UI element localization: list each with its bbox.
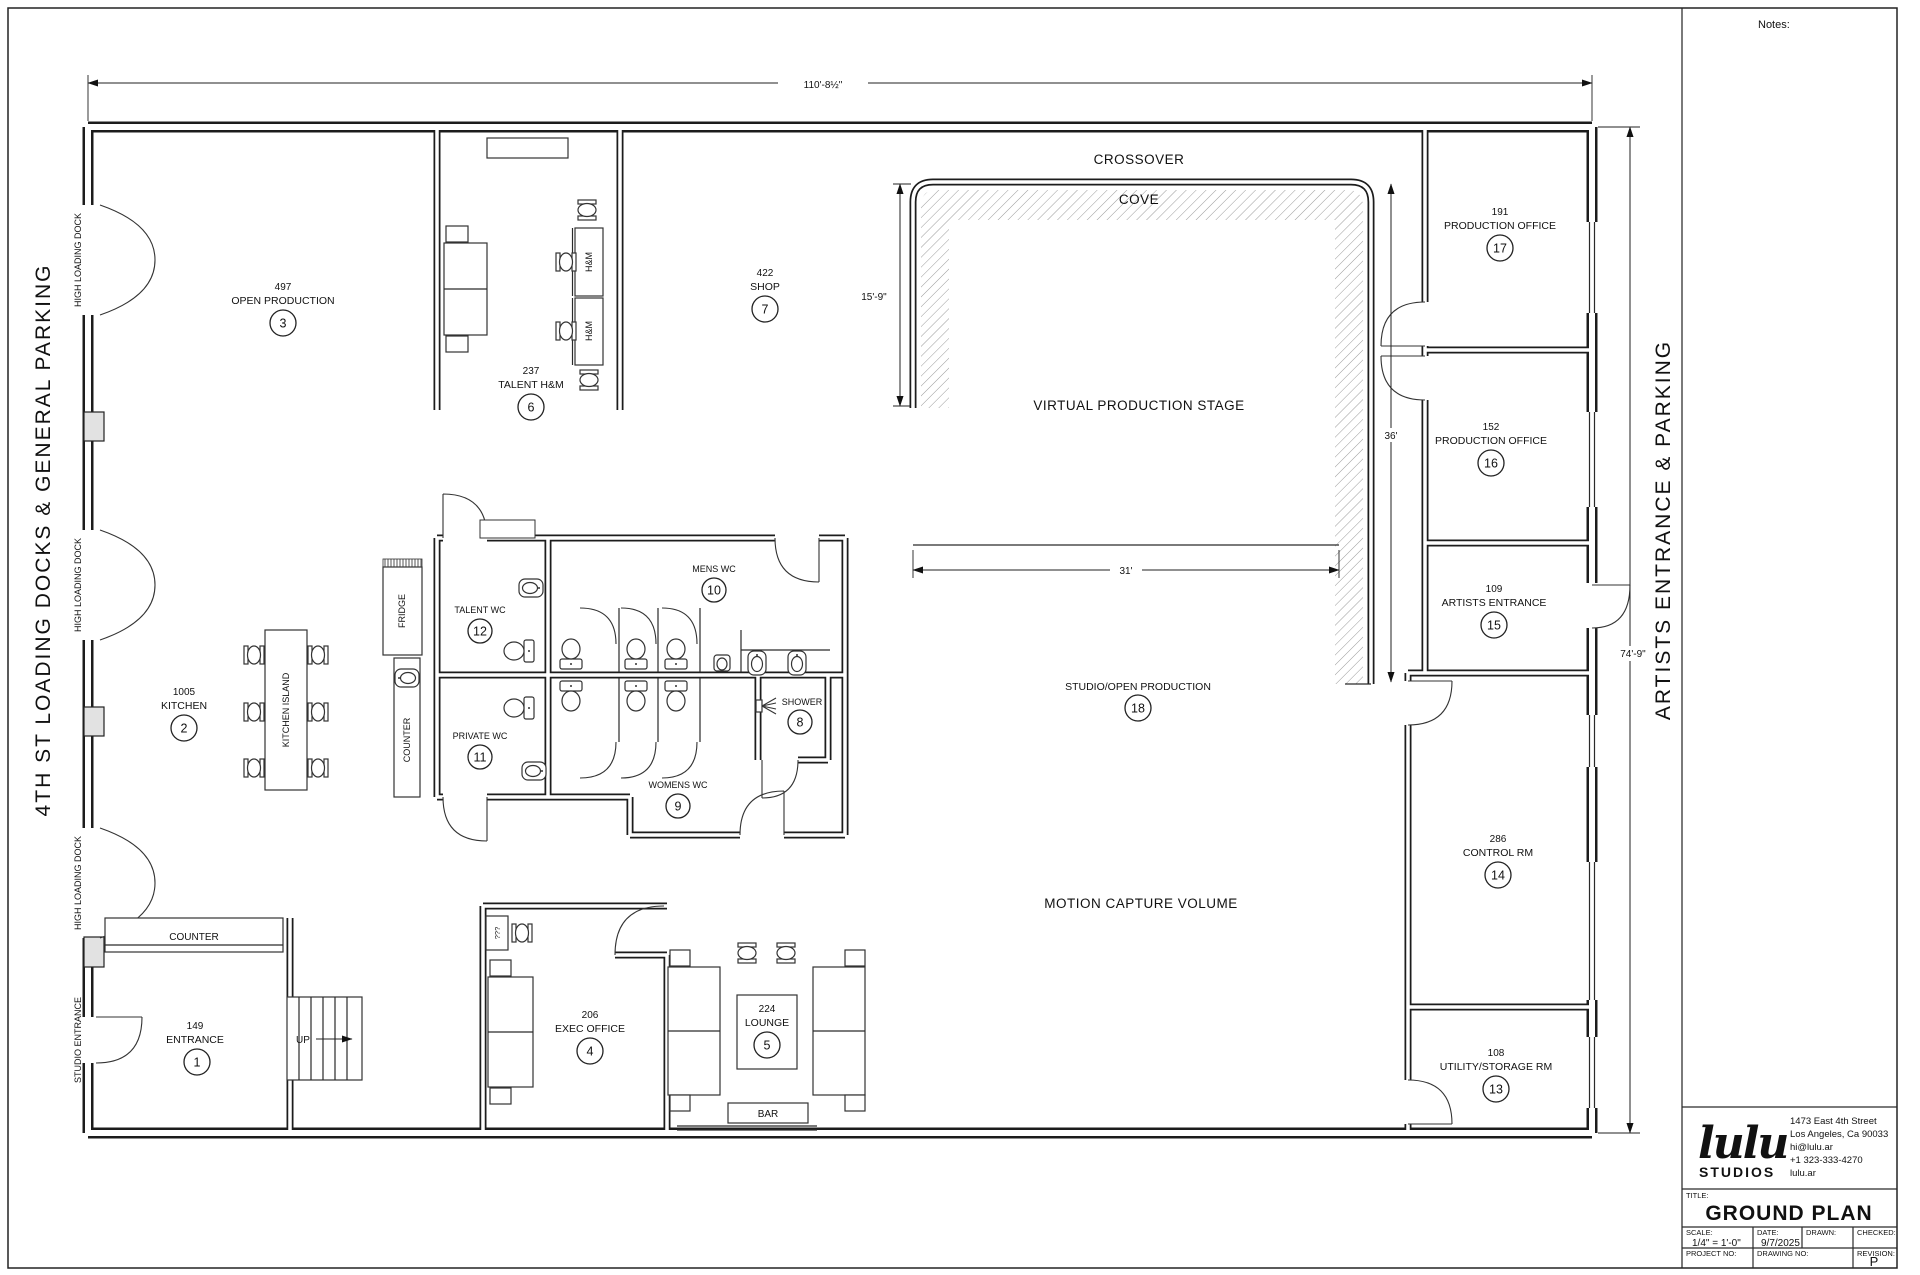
chair-icon xyxy=(777,943,795,963)
hm-label-2: H&M xyxy=(584,321,594,341)
toilet-icon xyxy=(504,640,534,662)
address-line-5: lulu.ar xyxy=(1790,1168,1816,1179)
address-line-4: +1 323-333-4270 xyxy=(1790,1155,1863,1166)
svg-text:EXEC OFFICE: EXEC OFFICE xyxy=(555,1023,625,1035)
mocap-label: MOTION CAPTURE VOLUME xyxy=(1044,896,1238,911)
svg-text:11: 11 xyxy=(474,751,487,765)
scale-value: 1/4" = 1'-0" xyxy=(1692,1238,1741,1249)
date-label: DATE: xyxy=(1757,1228,1779,1237)
chair-icon xyxy=(556,322,576,340)
svg-text:422: 422 xyxy=(757,268,774,279)
desk-label: ??? xyxy=(493,927,502,940)
room-womens-wc: WOMENS WC 9 xyxy=(649,780,708,818)
svg-text:12: 12 xyxy=(473,625,487,639)
svg-text:191: 191 xyxy=(1492,207,1509,218)
svg-text:OPEN PRODUCTION: OPEN PRODUCTION xyxy=(231,295,334,307)
ground-plan-sheet: 110'-8½" 74'-9" 15'-9" 36' 31' CROSSOVER… xyxy=(0,0,1920,1275)
svg-text:5: 5 xyxy=(764,1039,771,1053)
dim-cove-height: 15'-9" xyxy=(861,292,887,303)
urinal-icon xyxy=(714,655,730,671)
crossover-label: CROSSOVER xyxy=(1094,152,1185,167)
chair-icon xyxy=(578,200,596,220)
drawing-label: DRAWING NO: xyxy=(1757,1249,1808,1258)
studio-entrance-label: STUDIO ENTRANCE xyxy=(73,997,83,1083)
address-line-2: Los Angeles, Ca 90033 xyxy=(1790,1129,1888,1140)
toilet-icon xyxy=(665,639,687,669)
toilet-icon xyxy=(625,639,647,669)
misc-lines xyxy=(480,520,1371,1130)
cove-label: COVE xyxy=(1119,192,1159,207)
mens-stall-doors xyxy=(580,608,697,644)
logo-sub: STUDIOS xyxy=(1699,1164,1775,1180)
counter-label: COUNTER xyxy=(169,932,218,943)
date-value: 9/7/2025 xyxy=(1761,1238,1800,1249)
svg-text:10: 10 xyxy=(707,584,721,598)
svg-text:1005: 1005 xyxy=(173,687,196,698)
studio-number: 18 xyxy=(1131,702,1145,716)
floor-plan-drawing: 110'-8½" 74'-9" 15'-9" 36' 31' CROSSOVER… xyxy=(0,0,1920,1275)
room-talent-hm: 237 TALENT H&M 6 xyxy=(498,366,564,420)
chair-icon xyxy=(308,646,328,664)
lounge-sofa-right xyxy=(813,950,865,1111)
svg-text:PRODUCTION OFFICE: PRODUCTION OFFICE xyxy=(1444,220,1556,232)
svg-text:13: 13 xyxy=(1489,1083,1503,1097)
room-private-wc: PRIVATE WC 11 xyxy=(453,731,508,769)
private-wc-door xyxy=(443,797,487,841)
chair-icon xyxy=(244,759,264,777)
artists-entrance-door xyxy=(1592,585,1630,628)
title-block: lulu STUDIOS 1473 East 4th Street Los An… xyxy=(1682,1107,1897,1269)
toilet-icon xyxy=(504,697,534,719)
shower-door xyxy=(762,760,798,798)
toilet-icon xyxy=(665,681,687,711)
svg-text:ARTISTS ENTRANCE: ARTISTS ENTRANCE xyxy=(1442,597,1547,609)
svg-text:286: 286 xyxy=(1490,834,1507,845)
loading-dock-door-2 xyxy=(100,530,155,640)
svg-text:109: 109 xyxy=(1486,584,1503,595)
dim-top: 110'-8½" xyxy=(804,80,843,91)
svg-text:3: 3 xyxy=(280,317,287,331)
utility-rm-door xyxy=(1408,1080,1452,1124)
hm-table xyxy=(487,138,568,158)
loading-dock-door-1 xyxy=(100,205,155,315)
svg-text:206: 206 xyxy=(582,1010,599,1021)
room-shop: 422 SHOP 7 xyxy=(750,268,780,322)
drawn-label: DRAWN: xyxy=(1806,1228,1836,1237)
svg-text:152: 152 xyxy=(1483,422,1500,433)
svg-text:UTILITY/STORAGE RM: UTILITY/STORAGE RM xyxy=(1440,1061,1552,1073)
svg-text:17: 17 xyxy=(1493,242,1507,256)
room-control-rm: 286 CONTROL RM 14 xyxy=(1463,834,1533,888)
cove-hatch xyxy=(921,190,1363,684)
svg-text:PRIVATE WC: PRIVATE WC xyxy=(453,731,508,741)
chair-icon xyxy=(308,759,328,777)
svg-text:7: 7 xyxy=(762,303,769,317)
address-line-3: hi@lulu.ar xyxy=(1790,1142,1833,1153)
sink-icon xyxy=(395,669,419,687)
svg-text:PRODUCTION OFFICE: PRODUCTION OFFICE xyxy=(1435,435,1547,447)
svg-text:15: 15 xyxy=(1487,619,1501,633)
chair-icon xyxy=(244,703,264,721)
dim-stage-width: 31' xyxy=(1119,566,1132,577)
womens-stall-doors xyxy=(580,742,697,778)
chair-icon xyxy=(512,924,532,942)
room-shower: SHOWER 8 xyxy=(782,697,823,734)
zone-labels: CROSSOVER COVE VIRTUAL PRODUCTION STAGE … xyxy=(1033,152,1244,911)
svg-text:149: 149 xyxy=(187,1021,204,1032)
svg-text:TALENT WC: TALENT WC xyxy=(454,605,506,615)
svg-text:9: 9 xyxy=(675,800,682,814)
svg-text:14: 14 xyxy=(1491,869,1505,883)
svg-text:1: 1 xyxy=(194,1056,201,1070)
svg-text:108: 108 xyxy=(1488,1048,1505,1059)
svg-text:TALENT H&M: TALENT H&M xyxy=(498,379,564,391)
checked-label: CHECKED: xyxy=(1857,1228,1896,1237)
kitchen-counter-label: COUNTER xyxy=(402,717,412,762)
room-mens-wc: MENS WC 10 xyxy=(692,564,736,602)
lounge-sofa-left xyxy=(668,950,720,1111)
room-exec-office: 206 EXEC OFFICE 4 xyxy=(555,1010,625,1064)
svg-text:SHOP: SHOP xyxy=(750,281,780,293)
shower-head-icon xyxy=(756,698,776,714)
up-label: UP xyxy=(296,1035,310,1046)
dock-label-2: HIGH LOADING DOCK xyxy=(73,538,83,632)
wc-niche xyxy=(480,520,535,538)
dock-label-3: HIGH LOADING DOCK xyxy=(73,836,83,930)
chair-icon xyxy=(580,370,598,390)
sink-icon xyxy=(788,651,806,675)
svg-text:8: 8 xyxy=(797,716,804,730)
svg-text:ENTRANCE: ENTRANCE xyxy=(166,1034,224,1046)
hm-sofa xyxy=(444,226,487,352)
svg-text:CONTROL RM: CONTROL RM xyxy=(1463,847,1533,859)
hm-label-1: H&M xyxy=(584,252,594,272)
svg-text:SHOWER: SHOWER xyxy=(782,697,823,707)
title-label: TITLE: xyxy=(1686,1191,1709,1200)
toilet-icon xyxy=(625,681,647,711)
sink-icon xyxy=(519,579,543,597)
kitchen-island-label: KITCHEN ISLAND xyxy=(281,672,291,747)
toilet-icon xyxy=(560,639,582,669)
scale-label: SCALE: xyxy=(1686,1228,1713,1237)
mens-wc-door xyxy=(775,538,819,582)
svg-text:6: 6 xyxy=(528,401,535,415)
room-production-office-16: 152 PRODUCTION OFFICE 16 xyxy=(1435,422,1547,476)
room-entrance: 149 ENTRANCE 1 xyxy=(166,1021,224,1075)
svg-text:16: 16 xyxy=(1484,457,1498,471)
project-label: PROJECT NO: xyxy=(1686,1249,1736,1258)
sink-icon xyxy=(748,651,766,675)
room-kitchen: 1005 KITCHEN 2 xyxy=(161,687,207,741)
room-utility-storage: 108 UTILITY/STORAGE RM 13 xyxy=(1440,1048,1552,1102)
revision-value: P xyxy=(1870,1254,1879,1269)
room-open-production: 497 OPEN PRODUCTION 3 xyxy=(231,282,334,336)
room-artists-entrance: 109 ARTISTS ENTRANCE 15 xyxy=(1442,584,1547,638)
svg-text:LOUNGE: LOUNGE xyxy=(745,1017,789,1029)
dim-right: 74'-9" xyxy=(1620,649,1646,660)
svg-text:MENS WC: MENS WC xyxy=(692,564,736,574)
bar-label: BAR xyxy=(758,1109,779,1120)
svg-text:4: 4 xyxy=(587,1045,594,1059)
notes-label: Notes: xyxy=(1758,19,1790,31)
exec-office-door xyxy=(615,906,664,955)
chair-icon xyxy=(738,943,756,963)
chair-icon xyxy=(244,646,264,664)
svg-text:2: 2 xyxy=(181,722,188,736)
chair-icon xyxy=(308,703,328,721)
chair-icon xyxy=(556,253,576,271)
control-rm-door xyxy=(1408,681,1452,725)
studio-entrance-door xyxy=(96,1017,142,1063)
studio-label: STUDIO/OPEN PRODUCTION xyxy=(1065,681,1211,693)
production-office-16-door xyxy=(1381,356,1425,400)
side-label-right: ARTISTS ENTRANCE & PARKING xyxy=(1652,340,1675,720)
svg-text:224: 224 xyxy=(759,1004,776,1015)
svg-text:497: 497 xyxy=(275,282,292,293)
toilet-icon xyxy=(560,681,582,711)
fridge-label: FRIDGE xyxy=(397,594,407,628)
room-production-office-17: 191 PRODUCTION OFFICE 17 xyxy=(1444,207,1556,261)
svg-text:KITCHEN: KITCHEN xyxy=(161,700,207,712)
room-talent-wc: TALENT WC 12 xyxy=(454,605,506,643)
stage-label: VIRTUAL PRODUCTION STAGE xyxy=(1033,398,1244,413)
sink-icon xyxy=(522,762,546,780)
side-label-left: 4TH ST LOADING DOCKS & GENERAL PARKING xyxy=(32,264,55,817)
sheet-title: GROUND PLAN xyxy=(1705,1202,1872,1225)
svg-text:237: 237 xyxy=(523,366,540,377)
production-office-17-door xyxy=(1381,302,1425,346)
logo-script: lulu xyxy=(1698,1118,1787,1169)
address-line-1: 1473 East 4th Street xyxy=(1790,1116,1877,1127)
dock-label-1: HIGH LOADING DOCK xyxy=(73,213,83,307)
exec-sofa xyxy=(488,960,533,1104)
fridge-coil xyxy=(383,559,422,567)
dim-stage-depth: 36' xyxy=(1384,431,1397,442)
svg-text:WOMENS WC: WOMENS WC xyxy=(649,780,708,790)
